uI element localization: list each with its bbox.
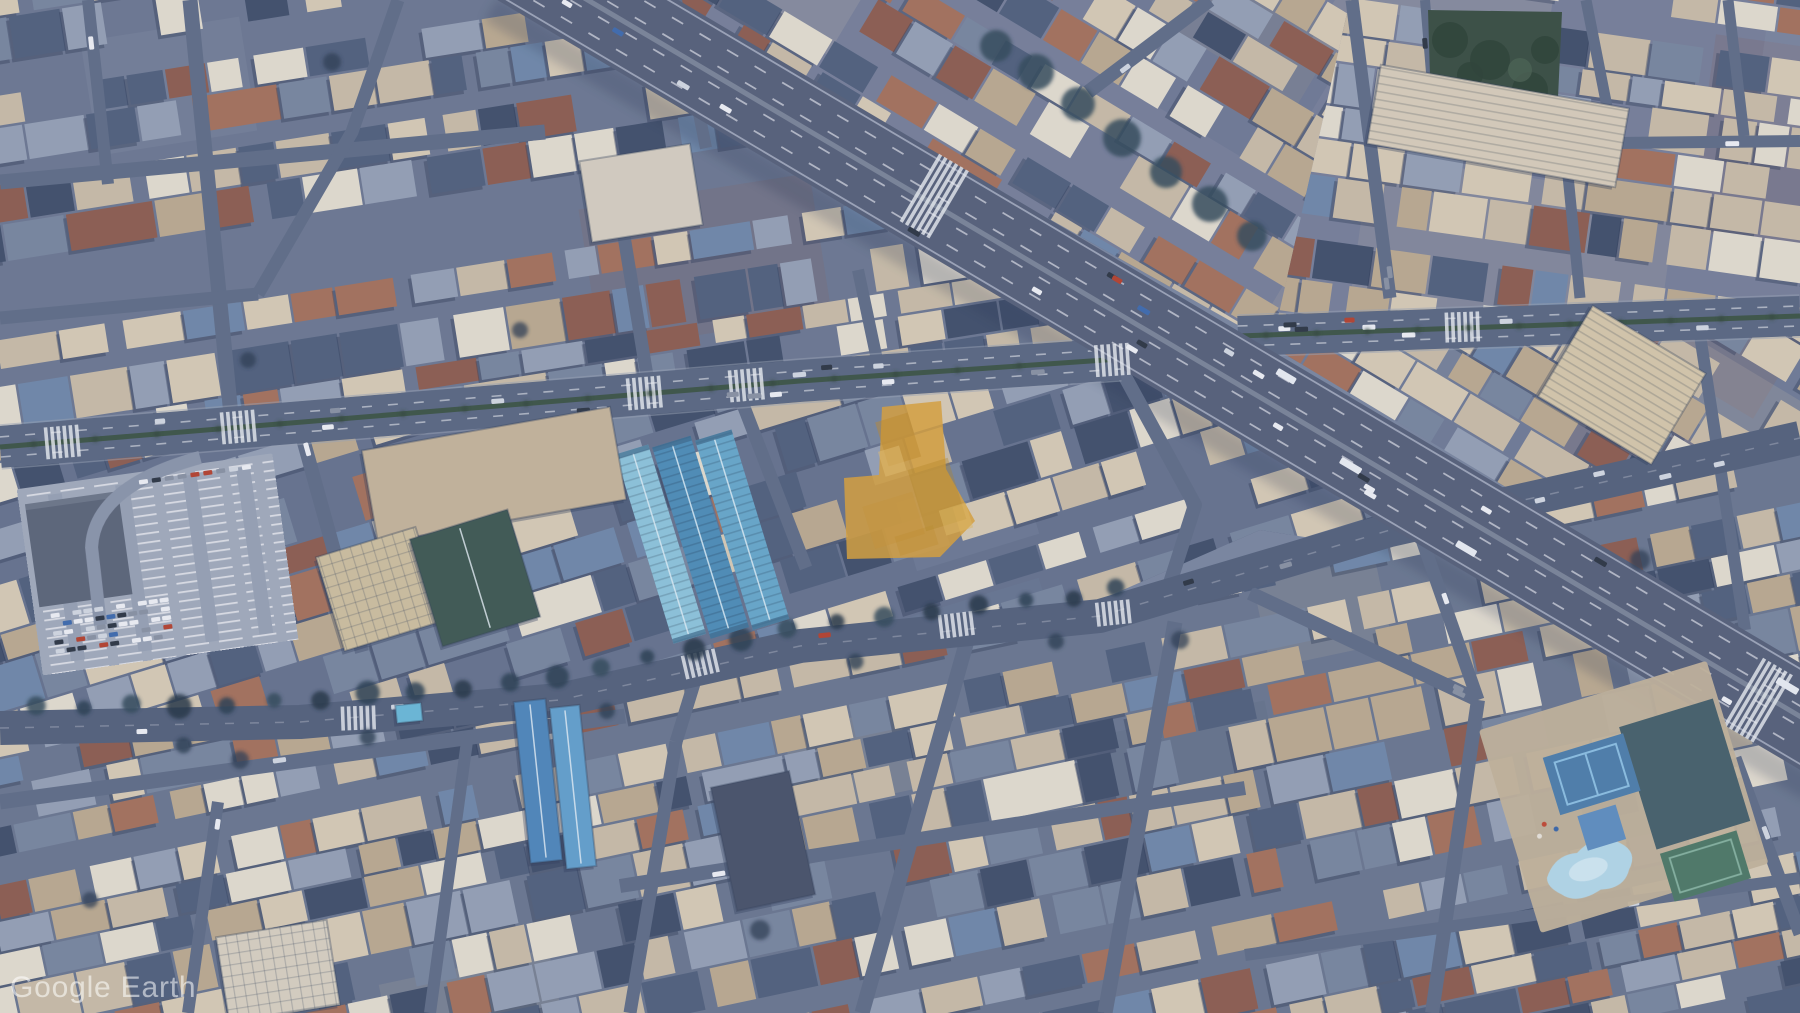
satellite-map-canvas[interactable] — [0, 0, 1800, 1013]
atmosphere-tint — [0, 0, 1800, 1013]
google-earth-watermark: Google Earth — [10, 971, 196, 1005]
google-earth-viewport: Google Earth — [0, 0, 1800, 1013]
